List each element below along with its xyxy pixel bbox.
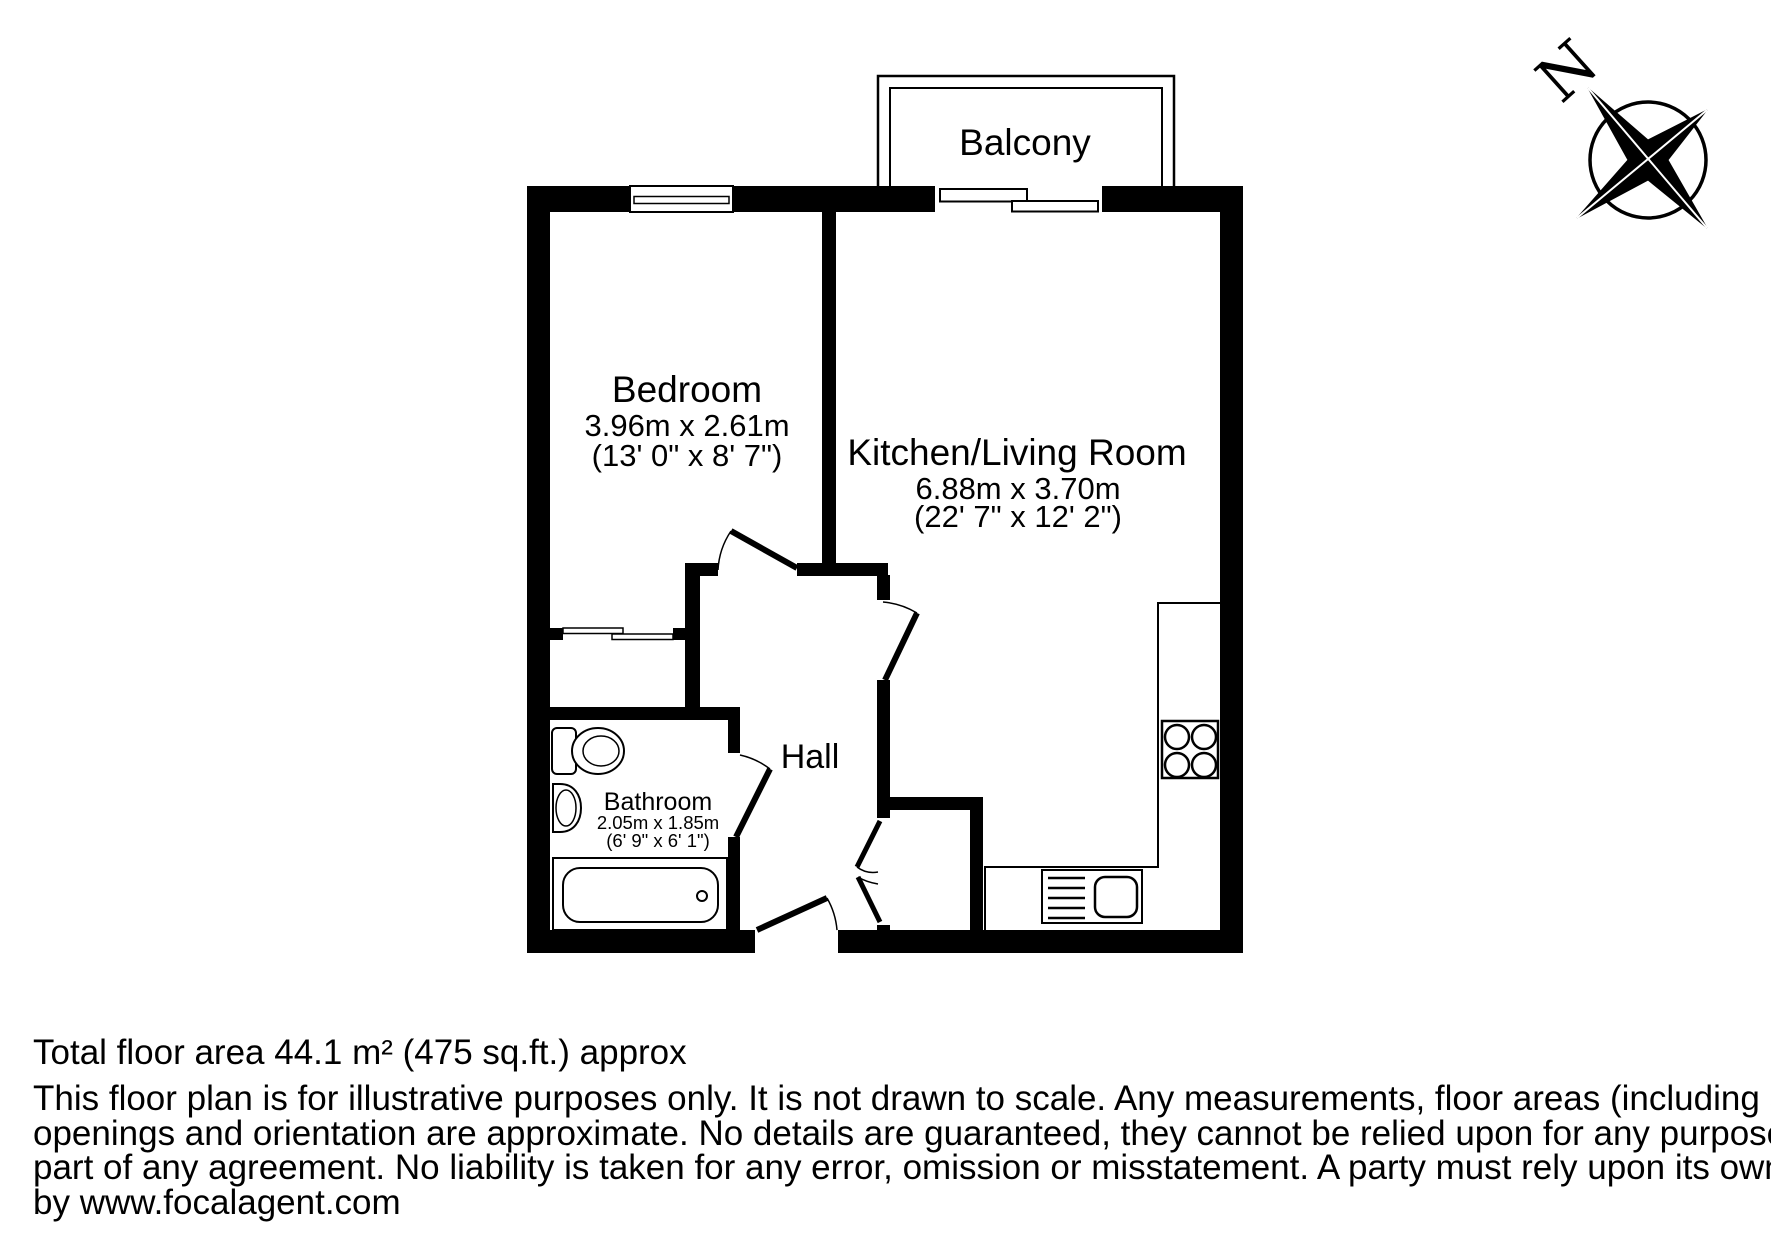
balcony-label: Balcony — [959, 122, 1091, 163]
kitchen-door — [883, 602, 917, 680]
hob-icon — [1162, 721, 1218, 778]
cupboard-bifold-door — [857, 821, 880, 922]
toilet-icon — [552, 728, 624, 774]
bedroom-door — [718, 531, 797, 570]
compass-star-icon — [1577, 88, 1707, 228]
bedroom-window — [630, 186, 733, 212]
wall-hall-east-stub — [877, 575, 890, 600]
entrance-door — [757, 898, 837, 930]
bathroom-dims-imperial: (6' 9" x 6' 1") — [606, 830, 709, 851]
bathtub-icon — [553, 858, 727, 930]
wardrobe-sliding-door — [563, 628, 673, 640]
total-floor-area: Total floor area 44.1 m² (475 sq.ft.) ap… — [33, 1033, 687, 1073]
bedroom-dims-imperial: (13' 0" x 8' 7") — [592, 438, 783, 473]
kitchen-sink-icon — [1042, 870, 1142, 923]
disclaimer-line: part of any agreement. No liability is t… — [33, 1151, 1771, 1186]
wall-bottom-left — [527, 930, 755, 953]
wall-left — [527, 186, 550, 953]
kitchen-living-label: Kitchen/Living Room — [847, 432, 1186, 473]
wall-cupboard-east — [970, 810, 983, 933]
balcony-sliding-door — [935, 186, 1102, 212]
basin-icon — [553, 784, 581, 832]
wall-hall-west — [685, 575, 700, 707]
wall-right — [1220, 186, 1243, 953]
disclaimer-line: openings and orientation are approximate… — [33, 1117, 1771, 1152]
wall-hall-north — [797, 563, 888, 576]
wall-bottom-right — [838, 930, 1243, 953]
wall-cupboard-north — [890, 797, 983, 810]
compass: N — [1522, 26, 1707, 228]
wall-bedroom-kitchen — [822, 212, 836, 563]
wall-wardrobe-stub-left — [550, 628, 563, 640]
wall-bathroom-east-lower — [728, 837, 740, 933]
bathroom-door — [736, 755, 770, 837]
disclaimer-line: by www.focalagent.com — [33, 1186, 1771, 1221]
bedroom-label: Bedroom — [612, 369, 762, 410]
kitchen-fixtures — [985, 603, 1220, 930]
wall-bathroom-east-upper — [728, 720, 740, 753]
wall-top-mid — [733, 186, 935, 212]
disclaimer: This floor plan is for illustrative purp… — [33, 1082, 1771, 1220]
kitchen-living-dims-imperial: (22' 7" x 12' 2") — [914, 499, 1122, 534]
wall-wardrobe-stub-right — [673, 628, 700, 640]
hall-label: Hall — [781, 738, 840, 776]
wall-bedroom-south-stub — [685, 563, 718, 576]
disclaimer-line: This floor plan is for illustrative purp… — [33, 1082, 1771, 1117]
wall-hall-east-bottom-stub — [877, 925, 890, 953]
wall-bathroom-north — [540, 707, 740, 720]
wall-hall-east — [877, 680, 890, 818]
